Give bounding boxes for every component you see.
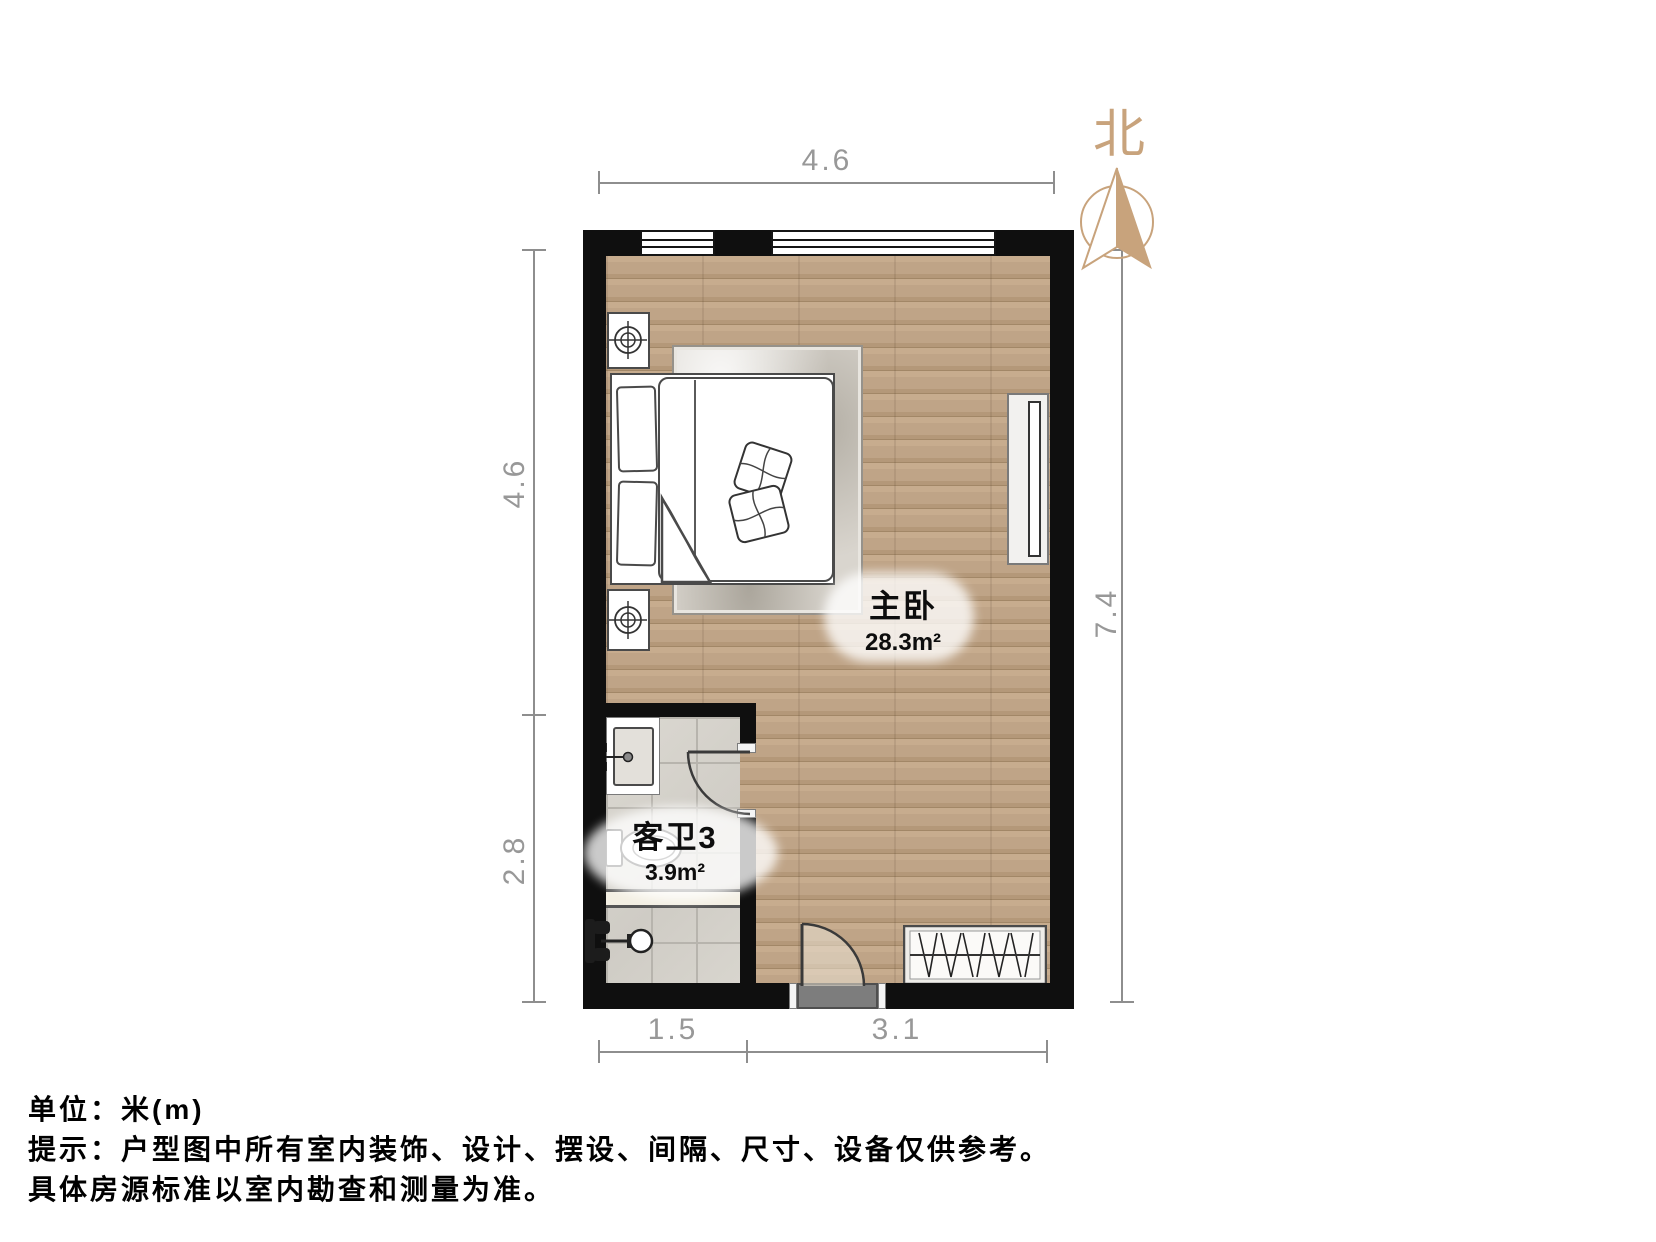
window-small bbox=[640, 230, 715, 256]
dimension-tick bbox=[522, 714, 546, 716]
window-large bbox=[771, 230, 996, 256]
note-unit: 单位：米(m) bbox=[28, 1088, 205, 1128]
dimension-label-bottom-right: 3.1 bbox=[872, 1013, 923, 1047]
bed-pillow-top bbox=[616, 385, 658, 472]
shower-head-icon bbox=[579, 915, 657, 967]
room-label-bathroom: 客卫3 3.9m² bbox=[632, 812, 717, 886]
note-tip-continued: 具体房源标准以室内勘查和测量为准。 bbox=[28, 1168, 555, 1208]
dimension-tick bbox=[522, 1001, 546, 1003]
faucet-icon bbox=[600, 742, 640, 772]
dimension-line-top bbox=[599, 182, 1055, 184]
exterior-wall-right bbox=[1050, 230, 1074, 1009]
room-name: 客卫3 bbox=[632, 812, 717, 857]
floor-plan-page: 主卧 28.3m² 客卫3 3.9m² 4.6 1.5 3.1 4.6 2.8 … bbox=[0, 0, 1656, 1242]
dimension-line-left bbox=[533, 250, 535, 1003]
room-name: 主卧 bbox=[865, 581, 941, 627]
crosshair-lamp-icon bbox=[607, 589, 650, 651]
tv-cabinet-door-panel bbox=[1028, 401, 1041, 557]
bathroom-wall-top bbox=[583, 703, 756, 717]
dimension-label-top-width: 4.6 bbox=[802, 144, 853, 178]
hanging-clothes-zigzag-icon bbox=[903, 925, 1047, 985]
dimension-label-right-height: 7.4 bbox=[1090, 588, 1124, 639]
exterior-wall-left bbox=[583, 230, 606, 1009]
dimension-label-left-lower: 2.8 bbox=[498, 835, 532, 886]
bed-pillow-bottom bbox=[616, 480, 658, 566]
dimension-tick bbox=[1110, 1001, 1134, 1003]
bathroom-wall-right-upper bbox=[740, 717, 756, 744]
room-area: 28.3m² bbox=[865, 629, 941, 657]
dimension-line-bottom bbox=[599, 1051, 1048, 1053]
entry-door-swing bbox=[796, 918, 876, 990]
crosshair-lamp-icon bbox=[607, 312, 650, 369]
bed-decor-pillow-2 bbox=[722, 480, 796, 548]
note-tip: 提示：户型图中所有室内装饰、设计、摆设、间隔、尺寸、设备仅供参考。 bbox=[28, 1128, 1051, 1168]
room-label-bedroom: 主卧 28.3m² bbox=[865, 581, 941, 657]
entry-door-jamb-right bbox=[878, 983, 886, 1009]
wardrobe bbox=[903, 925, 1047, 985]
dimension-tick bbox=[598, 1040, 600, 1063]
dimension-tick bbox=[522, 249, 546, 251]
north-arrow-icon bbox=[1075, 156, 1163, 276]
dimension-label-bottom-left: 1.5 bbox=[648, 1013, 699, 1047]
dimension-tick bbox=[746, 1040, 748, 1063]
dimension-tick bbox=[1046, 1040, 1048, 1063]
dimension-tick bbox=[598, 171, 600, 194]
room-area: 3.9m² bbox=[632, 859, 717, 886]
bed-duvet-corner-fold bbox=[658, 490, 728, 585]
dimension-label-left-upper: 4.6 bbox=[498, 458, 532, 509]
dimension-tick bbox=[1053, 171, 1055, 194]
